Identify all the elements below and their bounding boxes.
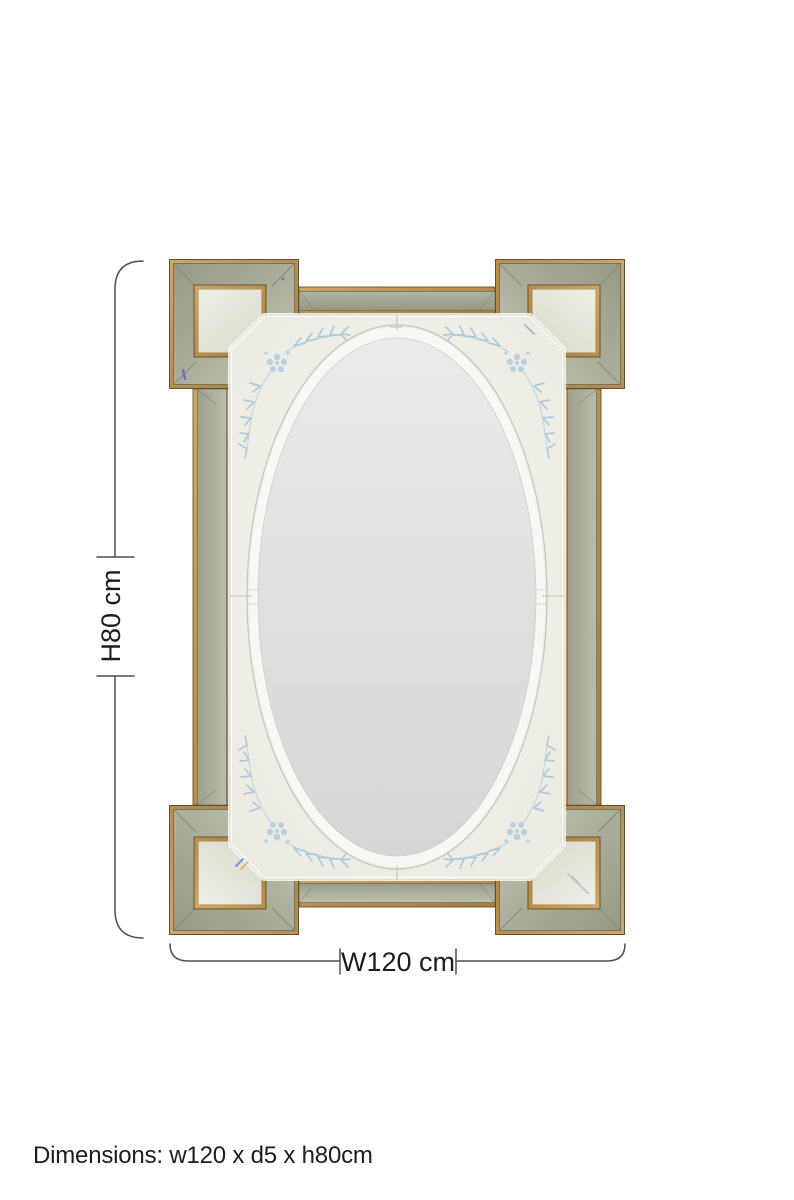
frame-bar-left xyxy=(193,389,231,805)
mirror-frame xyxy=(170,260,625,935)
frame-bar-bottom xyxy=(299,879,495,907)
mirror-product-figure: H80 cm W120 cm xyxy=(0,0,794,1200)
frame-bar-right xyxy=(563,389,601,805)
dimensions-caption: Dimensions: w120 x d5 x h80cm xyxy=(33,1142,373,1170)
frame-bar-top xyxy=(299,287,495,315)
width-dimension-label: W120 cm xyxy=(341,947,455,977)
height-dimension-label: H80 cm xyxy=(96,569,126,662)
product-dimension-page: H80 cm W120 cm Dimensions: w120 x d5 x h… xyxy=(0,0,794,1200)
